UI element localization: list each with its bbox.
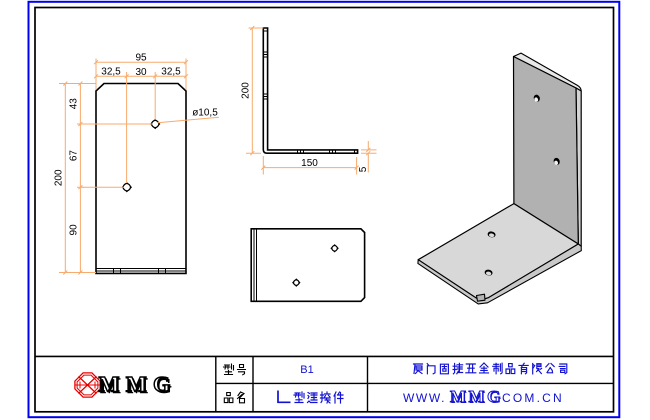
svg-text:B1: B1 bbox=[300, 364, 313, 376]
svg-text:MMG: MMG bbox=[450, 387, 503, 406]
svg-text:32,5: 32,5 bbox=[161, 67, 181, 78]
svg-text:95: 95 bbox=[135, 53, 147, 64]
svg-text:150: 150 bbox=[301, 158, 318, 169]
svg-text:200: 200 bbox=[241, 82, 252, 99]
svg-text:.COM.CN: .COM.CN bbox=[497, 391, 564, 405]
svg-text:30: 30 bbox=[135, 67, 147, 78]
svg-text:67: 67 bbox=[69, 150, 80, 162]
svg-text:WWW.: WWW. bbox=[403, 391, 446, 405]
svg-text:32,5: 32,5 bbox=[101, 67, 121, 78]
svg-text:43: 43 bbox=[69, 98, 80, 110]
svg-text:MMG: MMG bbox=[99, 371, 177, 396]
svg-text:90: 90 bbox=[69, 224, 80, 236]
svg-text:ø10,5: ø10,5 bbox=[192, 108, 218, 119]
svg-text:200: 200 bbox=[54, 169, 65, 186]
svg-text:5: 5 bbox=[358, 166, 369, 172]
